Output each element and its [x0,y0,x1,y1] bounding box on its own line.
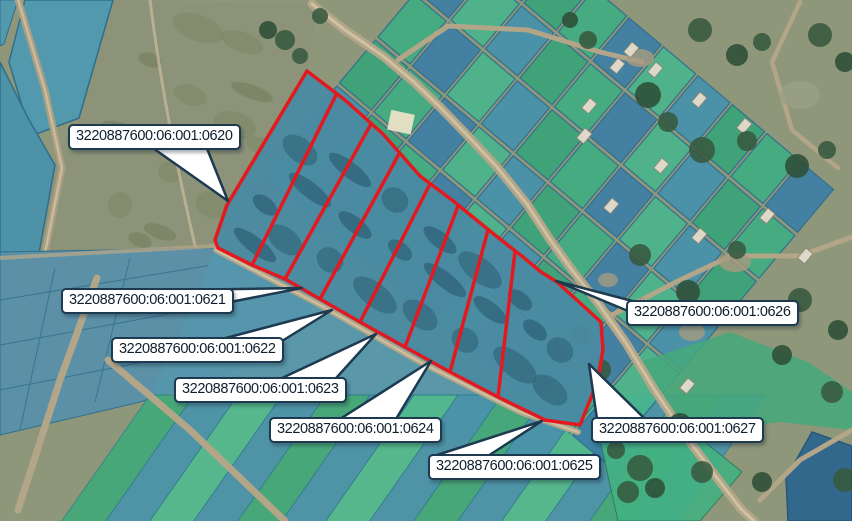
parcel-callout-0625[interactable]: 3220887600:06:001:0625 [428,454,601,480]
parcel-id-label: 3220887600:06:001:0622 [119,341,276,357]
parcel-callout-0627[interactable]: 3220887600:06:001:0627 [591,417,764,443]
parcel-callout-0623[interactable]: 3220887600:06:001:0623 [174,377,347,403]
parcel-id-label: 3220887600:06:001:0625 [436,458,593,474]
parcel-id-label: 3220887600:06:001:0626 [634,304,791,320]
parcel-id-label: 3220887600:06:001:0621 [69,292,226,308]
parcel-id-label: 3220887600:06:001:0627 [599,421,756,437]
parcel-callout-0621[interactable]: 3220887600:06:001:0621 [61,288,234,314]
parcel-callout-0626[interactable]: 3220887600:06:001:0626 [626,300,799,326]
parcel-callout-0622[interactable]: 3220887600:06:001:0622 [111,337,284,363]
parcel-callout-0624[interactable]: 3220887600:06:001:0624 [269,417,442,443]
parcel-id-label: 3220887600:06:001:0620 [76,128,233,144]
parcel-id-label: 3220887600:06:001:0623 [182,381,339,397]
parcel-id-label: 3220887600:06:001:0624 [277,421,434,437]
cadastral-map-view: 3220887600:06:001:0620 3220887600:06:001… [0,0,852,521]
parcel-callout-0620[interactable]: 3220887600:06:001:0620 [68,124,241,150]
